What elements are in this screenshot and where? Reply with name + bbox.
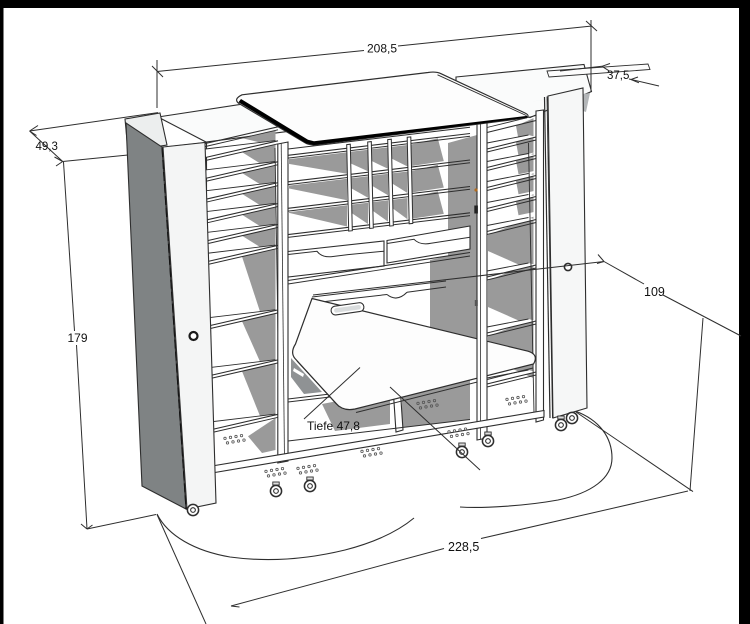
svg-text:49,3: 49,3 — [36, 141, 58, 153]
svg-text:179: 179 — [68, 331, 88, 345]
svg-text:208,5: 208,5 — [367, 42, 397, 56]
svg-text:Tiefe 47,8: Tiefe 47,8 — [307, 419, 360, 433]
svg-text:109: 109 — [644, 285, 665, 299]
svg-text:37,5: 37,5 — [607, 70, 629, 82]
svg-text:228,5: 228,5 — [448, 540, 479, 554]
